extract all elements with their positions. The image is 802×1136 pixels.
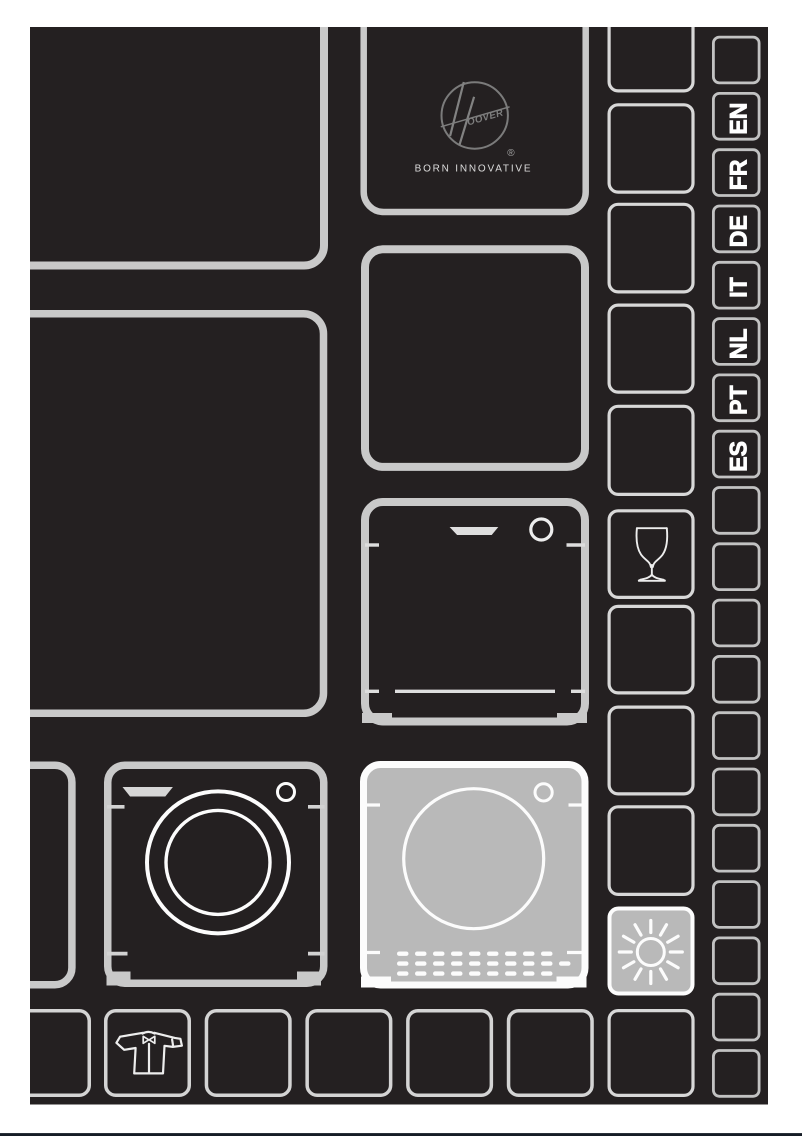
svg-text:FR: FR — [725, 160, 752, 191]
svg-text:DE: DE — [725, 215, 752, 247]
svg-text:NL: NL — [725, 328, 752, 359]
svg-text:EN: EN — [725, 103, 752, 135]
svg-text:IT: IT — [725, 277, 752, 298]
svg-text:BORN INNOVATIVE: BORN INNOVATIVE — [415, 164, 533, 175]
svg-text:®: ® — [507, 148, 515, 159]
svg-text:ES: ES — [725, 441, 752, 472]
svg-text:PT: PT — [725, 385, 752, 415]
